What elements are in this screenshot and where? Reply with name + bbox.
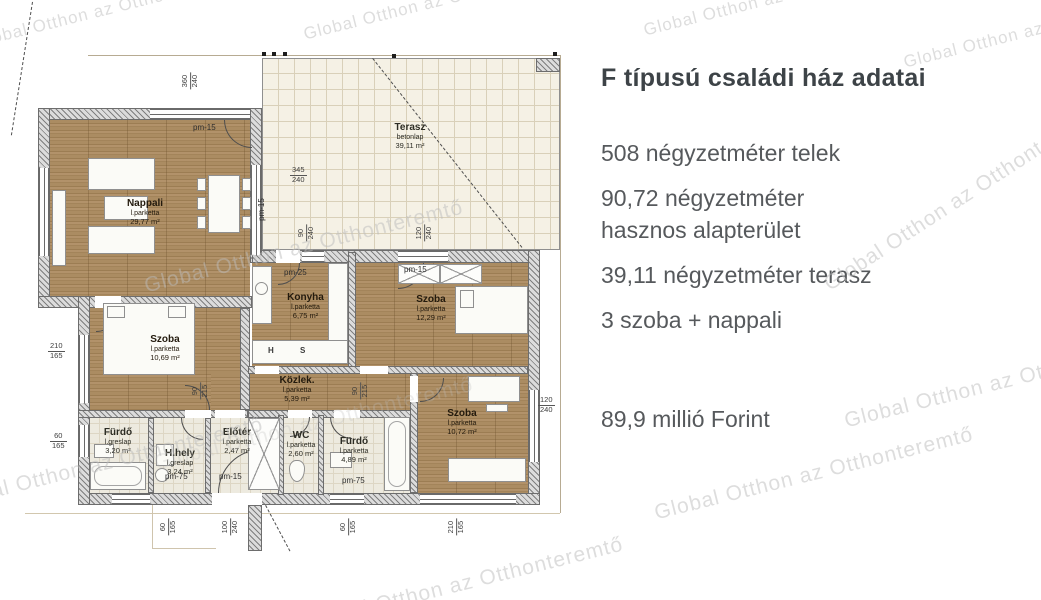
spec-line-szobak: 3 szoba + nappali [601, 304, 1031, 337]
bathtub [384, 417, 410, 491]
corner-tick [283, 52, 287, 56]
dimension-label: 60165 [50, 432, 67, 450]
dimension-label: 360240 [181, 73, 199, 90]
spec-line-terasz: 39,11 négyzetméter terasz [601, 259, 1031, 292]
wardrobe [440, 264, 482, 284]
room-label-wc: WC l.parketta 2,60 m² [283, 430, 319, 458]
room-label-konyha: Konyha l.parketta 6,75 m² [278, 292, 333, 320]
wall-segment [248, 366, 528, 374]
sofa [88, 158, 155, 190]
pillow [168, 306, 186, 318]
bed [448, 458, 526, 482]
door-opening [255, 366, 279, 374]
plot-boundary-line [88, 55, 560, 56]
hob-mark: H [268, 346, 274, 355]
wall-segment [348, 252, 356, 374]
dimension-label: 60165 [159, 519, 177, 536]
dimension-label: 210165 [48, 342, 65, 360]
door-code-label: pm-25 [284, 268, 307, 277]
watermark-text: Global Otthon az Otthonteremtő [642, 0, 910, 40]
door-code-label: pm-75 [165, 472, 188, 481]
room-area: 6,75 m² [278, 312, 333, 321]
info-panel: F típusú családi ház adatai 508 négyzetm… [601, 64, 1031, 433]
room-area: 2,47 m² [212, 447, 262, 456]
room-label-szoba-nyugati: Szoba l.parketta 10,69 m² [135, 334, 195, 362]
window [112, 493, 150, 505]
room-area: 4,89 m² [328, 456, 380, 465]
room-name: Közlek. [267, 375, 327, 387]
door-code-label: pm-15 [257, 198, 266, 221]
window [38, 168, 50, 256]
wall-segment [528, 250, 540, 505]
room-name: Fürdő [328, 436, 380, 448]
window [78, 425, 90, 457]
room-area: 29,77 m² [103, 218, 187, 227]
chair [242, 216, 251, 229]
screenshot-root: Nappali l.parketta 29,77 m² Terasz beton… [0, 0, 1041, 600]
page-title: F típusú családi ház adatai [601, 64, 1031, 93]
room-name: H.hely [152, 448, 208, 460]
corner-tick [272, 52, 276, 56]
dimension-label: 90240 [297, 225, 315, 242]
chair [197, 216, 206, 229]
window [302, 250, 324, 263]
room-label-furdo-keleti: Fürdő l.parketta 4,89 m² [328, 436, 380, 464]
path-line [152, 505, 153, 549]
room-name: WC [283, 430, 319, 442]
window [420, 493, 516, 505]
room-name: Terasz [375, 122, 445, 134]
room-area: 3,20 m² [93, 447, 143, 456]
wall-segment [240, 308, 250, 410]
room-area: 2,60 m² [283, 450, 319, 459]
plot-boundary-dashed-line [11, 2, 33, 135]
room-label-kozlekedo: Közlek. l.parketta 5,39 m² [267, 375, 327, 403]
spec-line-telek: 508 négyzetméter telek [601, 137, 1031, 170]
dimension-label: 90215 [351, 383, 369, 400]
room-name: Szoba [400, 294, 462, 306]
room-name: Konyha [278, 292, 333, 304]
room-label-szoba-deli: Szoba l.parketta 10,72 m² [432, 408, 492, 436]
door-opening [360, 366, 388, 374]
room-name: Szoba [135, 334, 195, 346]
door-opening [410, 376, 418, 402]
window [398, 250, 448, 263]
room-terasz [262, 58, 560, 250]
sink-mark: S [300, 346, 305, 355]
entrance-door-opening [212, 493, 262, 505]
floor-plan: Nappali l.parketta 29,77 m² Terasz beton… [0, 0, 585, 600]
kitchen-counter [252, 266, 272, 324]
door-opening [185, 410, 211, 418]
room-area: 39,11 m² [375, 142, 445, 151]
room-label-szoba-eszaki: Szoba l.parketta 12,29 m² [400, 294, 462, 322]
room-name: Fürdő [93, 427, 143, 439]
room-area: 10,72 m² [432, 428, 492, 437]
dimension-label: 100240 [221, 519, 239, 536]
chair [242, 178, 251, 191]
room-label-furdo-nyugati: Fürdő l.greslap 3,20 m² [93, 427, 143, 455]
door-code-label: pm-15 [193, 123, 216, 132]
chair [197, 197, 206, 210]
dining-table [208, 175, 240, 233]
dimension-label: 60165 [339, 519, 357, 536]
corner-tick [553, 52, 557, 56]
window [150, 108, 250, 120]
dimension-label: 90215 [191, 383, 209, 400]
dimension-label: 345240 [290, 166, 307, 184]
bathtub [90, 462, 146, 490]
spec-line-alapterulet: 90,72 négyzetméter hasznos alapterület [601, 182, 843, 247]
room-area: 12,29 m² [400, 314, 462, 323]
door-opening [215, 410, 245, 418]
room-name: Előtér [212, 427, 262, 439]
price-text: 89,9 millió Forint [601, 406, 1031, 433]
door-code-label: pm-15 [219, 472, 242, 481]
corner-tick [262, 52, 266, 56]
plot-boundary-line [25, 513, 560, 514]
chair [197, 178, 206, 191]
bed [468, 376, 520, 402]
path-line [152, 548, 216, 549]
room-label-eloter: Előtér l.parketta 2,47 m² [212, 427, 262, 455]
dimension-label: 210165 [447, 519, 465, 536]
room-label-nappali: Nappali l.parketta 29,77 m² [103, 198, 187, 226]
plot-boundary-line [560, 55, 561, 513]
door-code-label: pm-75 [342, 476, 365, 485]
door-opening [276, 250, 300, 263]
dimension-label: 120240 [415, 225, 433, 242]
window [78, 335, 90, 403]
window [330, 493, 364, 505]
chair [242, 197, 251, 210]
sofa [88, 226, 155, 254]
room-label-terasz: Terasz betonlap 39,11 m² [375, 122, 445, 150]
room-name: Szoba [432, 408, 492, 420]
watermark-text: Global Otthon az Otthonteremtő [902, 0, 1041, 72]
room-area: 5,39 m² [267, 395, 327, 404]
entry-dashed-line [265, 505, 290, 551]
entry-wall-stub [248, 505, 262, 551]
watermark-text: Global Otthon az Otthonteremtő [652, 423, 976, 526]
room-name: Nappali [103, 198, 187, 210]
pillow [107, 306, 125, 318]
door-code-label: pm-15 [404, 265, 427, 274]
kitchen-sink [255, 282, 268, 295]
terrace-pillar [536, 58, 560, 72]
tv-cabinet [52, 190, 66, 266]
pillow [460, 290, 474, 308]
room-area: 10,69 m² [135, 354, 195, 363]
dimension-label: 120240 [538, 396, 555, 414]
